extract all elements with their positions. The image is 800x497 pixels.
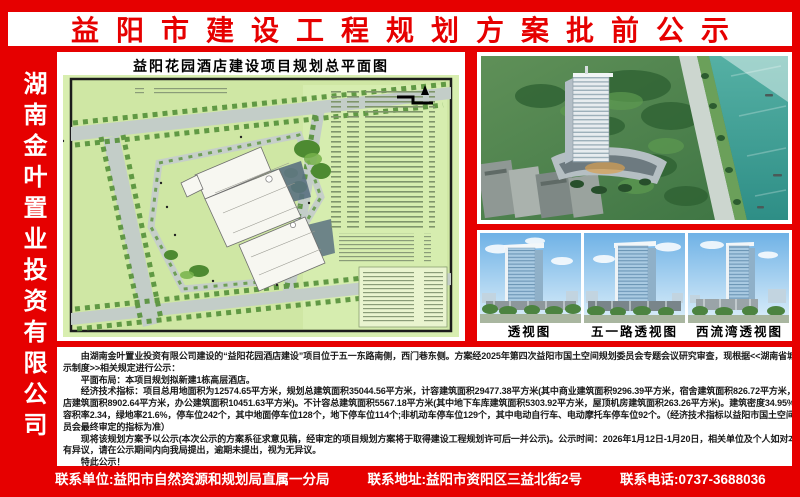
notice-text-line: 员会最终审定的指标为准） [63,422,786,434]
notice-text-line: 经济技术指标：项目总用地面积为12574.65平方米，规划总建筑面积35044.… [63,386,786,398]
notice-text-line: 示制度>>相关规定进行公示： [63,363,786,375]
notice-poster: 益阳市建设工程规划方案批前公示 湖南金叶置业投资有限公司 益阳花园酒店建设项目规… [0,0,800,497]
notice-text-line: 有异议，请在公示期间内向我局提出，逾期未提出，视为无异议。 [63,445,786,457]
banner: 益阳市建设工程规划方案批前公示 [8,12,792,46]
wuyi-road-perspective-image [584,233,685,323]
notice-text-line: 店建筑面积8902.64平方米，办公建筑面积10451.63平方米)。不计容总建… [63,398,786,410]
notice-text-line: 平面布局：本项目规划拟新建1栋高层酒店。 [63,375,786,387]
contact-address: 联系地址:益阳市资阳区三益北街2号 [368,468,583,488]
notice-text-line: 由湖南金叶置业投资有限公司建设的“益阳花园酒店建设”项目位于五一东路南侧，西门巷… [63,351,786,363]
renders-row [477,230,792,323]
notice-text-panel: 由湖南金叶置业投资有限公司建设的“益阳花园酒店建设”项目位于五一东路南侧，西门巷… [57,347,792,466]
render-xiliuwan [688,233,789,323]
render-label-xiliuwan: 西流湾透视图 [687,323,792,341]
render-labels-row: 透视图 五一路透视图 西流湾透视图 [477,323,792,341]
contact-phone: 联系电话:0737-3688036 [620,468,766,488]
render-wuyi-road [584,233,685,323]
site-plan-image [63,75,459,337]
company-sidebar: 湖南金叶置业投资有限公司 [8,46,57,468]
company-name: 湖南金叶置业投资有限公司 [15,71,50,443]
aerial-view-image [481,56,788,220]
xiliuwan-perspective-image [688,233,789,323]
render-label-perspective: 透视图 [477,323,582,341]
notice-text-line: 容积率2.34，绿地率21.6%，停车位242个，其中地面停车位128个，地下停… [63,410,786,422]
aerial-view-panel [477,52,792,224]
site-plan-title: 益阳花园酒店建设项目规划总平面图 [57,56,465,76]
poster-title: 益阳市建设工程规划方案批前公示 [54,9,746,49]
notice-text-line: 现将该规划方案予以公示(本次公示的方案系征求意见稿，经审定的项目规划方案将于取得… [63,434,786,446]
perspective-image [480,233,581,323]
footer-contact-bar: 联系单位:益阳市自然资源和规划局直属一分局 联系地址:益阳市资阳区三益北街2号 … [8,466,792,490]
perspective-renders-panel: 透视图 五一路透视图 西流湾透视图 [477,230,792,341]
render-label-wuyi-road: 五一路透视图 [582,323,687,341]
render-perspective [480,233,581,323]
notice-text-line: 特此公示！ [63,457,786,466]
contact-unit: 联系单位:益阳市自然资源和规划局直属一分局 [55,468,330,488]
site-plan-panel: 益阳花园酒店建设项目规划总平面图 [57,52,465,341]
